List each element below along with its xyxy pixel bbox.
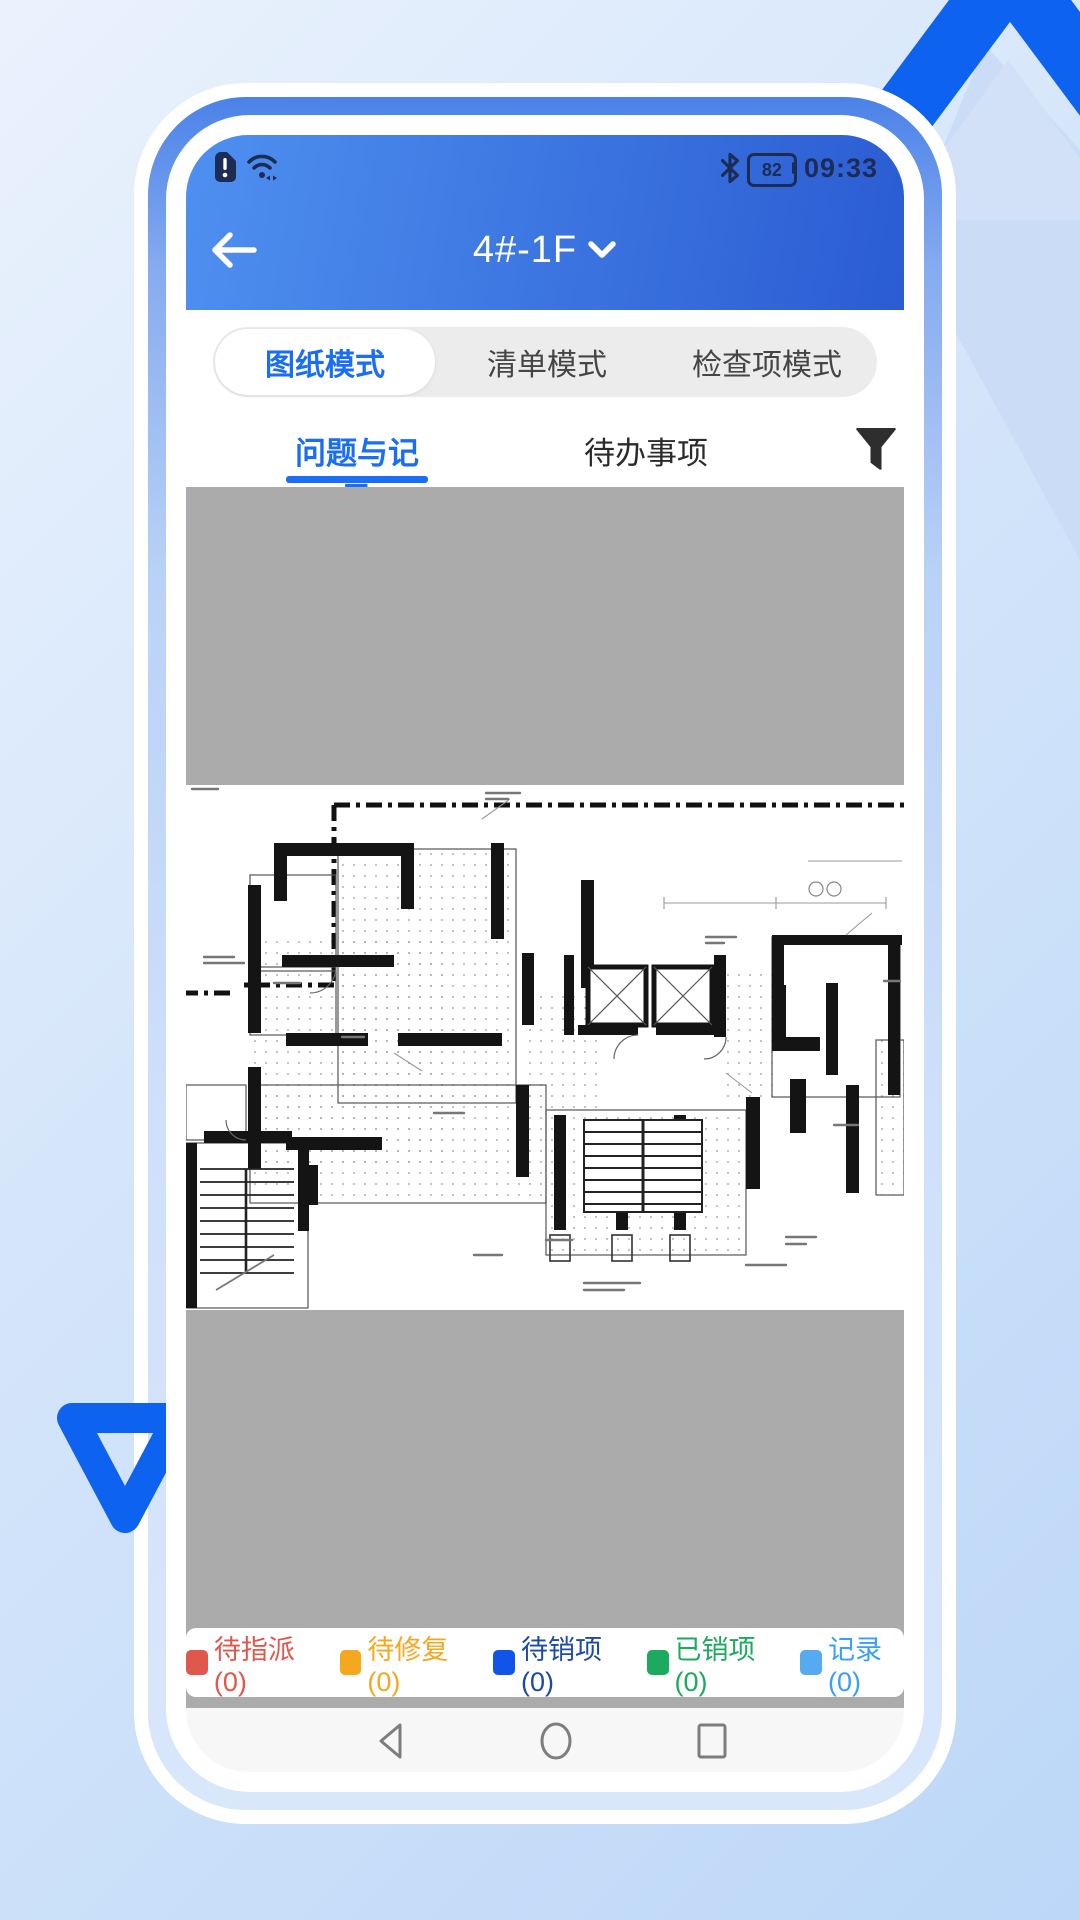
- sim-alert-icon: [212, 150, 238, 184]
- nav-back-icon[interactable]: [374, 1722, 414, 1760]
- legend-swatch: [186, 1650, 208, 1675]
- mode-tabs: 图纸模式 清单模式 检查项模式: [186, 310, 904, 420]
- legend-item-record: 记录(0): [800, 1628, 904, 1698]
- tab-drawing-mode[interactable]: 图纸模式: [215, 329, 435, 395]
- nav-recents-icon[interactable]: [692, 1722, 732, 1760]
- battery-percent: 82: [762, 160, 782, 181]
- status-legend: 待指派(0) 待修复(0) 待销项(0) 已销项(0) 记录(0): [186, 1628, 904, 1697]
- tab-check-item-mode[interactable]: 检查项模式: [657, 327, 877, 397]
- app-header: 4#-1F: [186, 190, 904, 310]
- page-title: 4#-1F: [473, 229, 577, 272]
- active-tab-underline: [286, 476, 428, 483]
- android-nav-bar: [186, 1708, 904, 1772]
- bluetooth-icon: [720, 152, 740, 184]
- legend-swatch: [800, 1650, 822, 1675]
- sub-tabs: 问题与记录 待办事项: [186, 420, 904, 487]
- title-dropdown[interactable]: 4#-1F: [186, 190, 904, 310]
- status-bar-right: 82 09:33: [720, 151, 878, 185]
- legend-item-closed: 已销项(0): [647, 1628, 775, 1698]
- legend-swatch: [647, 1650, 669, 1675]
- battery-icon: 82: [747, 153, 797, 183]
- legend-item-to-close: 待销项(0): [493, 1628, 621, 1698]
- nav-home-icon[interactable]: [536, 1722, 576, 1760]
- tab-list-mode[interactable]: 清单模式: [437, 327, 657, 397]
- mode-tab-group: 图纸模式 清单模式 检查项模式: [213, 327, 877, 397]
- legend-swatch: [493, 1650, 515, 1675]
- wifi-icon: [246, 151, 280, 183]
- app-screen: 82 09:33 4#-1F 图纸模式 清单模式 检查项模式 问题与记录 待办事…: [186, 135, 904, 1772]
- chevron-down-icon: [587, 240, 617, 260]
- legend-swatch: [340, 1650, 362, 1675]
- legend-item-to-repair: 待修复(0): [340, 1628, 468, 1698]
- drawing-viewer[interactable]: 待指派(0) 待修复(0) 待销项(0) 已销项(0) 记录(0): [186, 487, 904, 1708]
- clock: 09:33: [804, 153, 878, 184]
- status-bar-left: [212, 149, 280, 185]
- floor-plan-drawing[interactable]: [186, 785, 904, 1310]
- tab-todo-items[interactable]: 待办事项: [571, 428, 721, 473]
- legend-item-to-assign: 待指派(0): [186, 1628, 314, 1698]
- funnel-filter-icon[interactable]: [856, 428, 896, 472]
- phone: 82 09:33 4#-1F 图纸模式 清单模式 检查项模式 问题与记录 待办事…: [166, 115, 924, 1792]
